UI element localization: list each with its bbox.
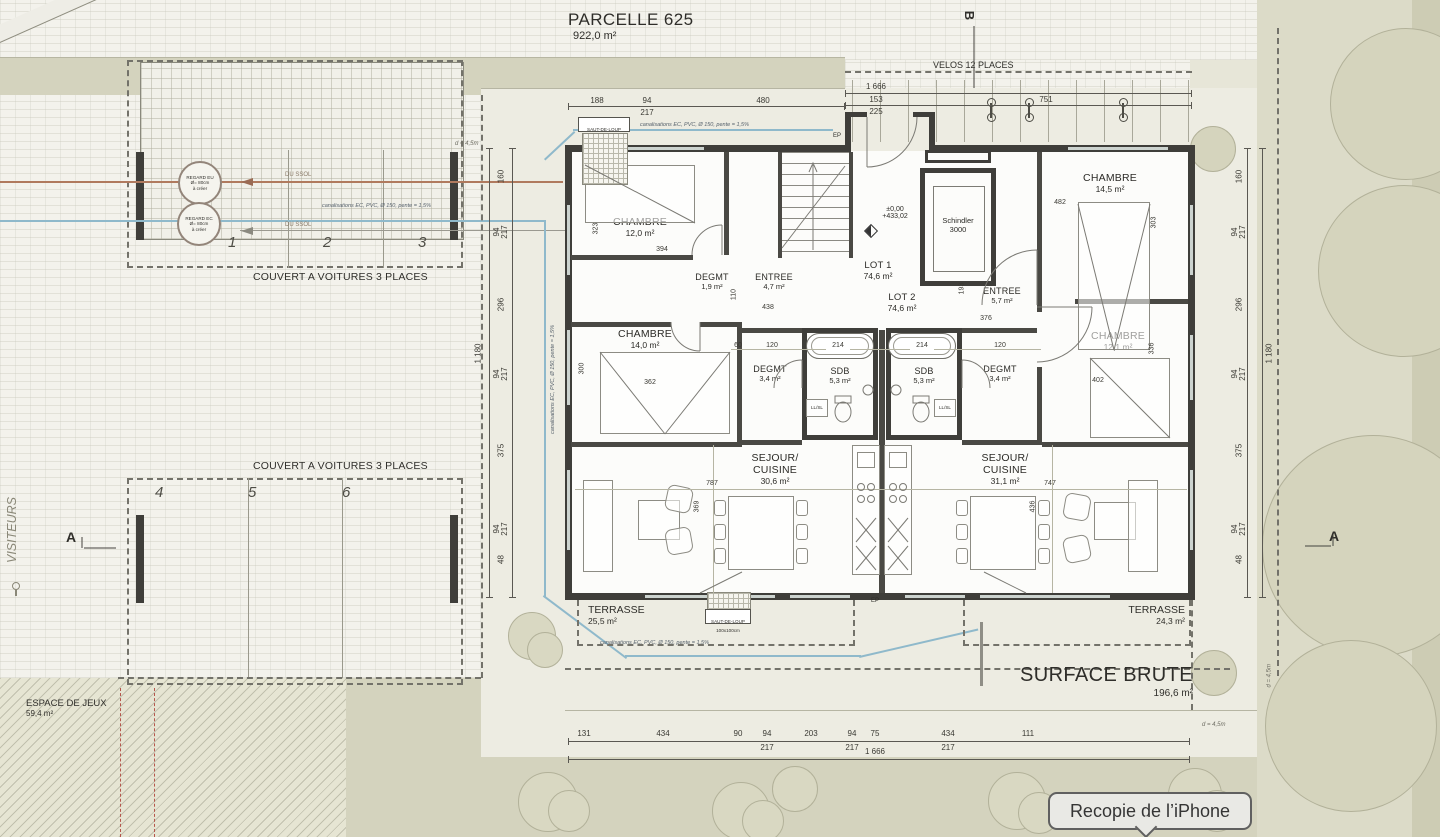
room-label-lot2: LOT 2 74,6 m²	[880, 292, 924, 313]
canalisation-label: canalisations EC, PVC, Ø 150, pente = 1,…	[322, 203, 431, 209]
saut-de-loup-size: 100x100cm	[706, 628, 750, 633]
pipe-ec-line	[0, 220, 546, 222]
room-label-sdb2: SDB 5,3 m²	[906, 366, 942, 385]
dim-label: 75	[866, 729, 884, 738]
dim-label-pair: 94 217	[1231, 518, 1247, 540]
lot-area: 74,6 m²	[880, 303, 924, 313]
washer-dryer: LL/SL	[806, 399, 828, 417]
dim-label: 193	[958, 277, 967, 301]
room-area: 25,5 m²	[588, 616, 645, 626]
ep-label: EP	[871, 598, 879, 605]
room-label-degmt2: DEGMT 3,4 m²	[748, 364, 792, 383]
kitchen-sink	[857, 452, 875, 468]
ep-label: EP	[833, 133, 841, 140]
room-label-sejour2: SEJOUR/ CUISINE 31,1 m²	[973, 452, 1037, 486]
dining-table	[728, 496, 794, 570]
dim-label: 203	[797, 729, 825, 738]
dim-label: 120	[990, 341, 1010, 350]
saut-de-loup-label: SAUT-DE-LOUP	[587, 127, 621, 132]
room-area: 14,0 m²	[613, 340, 677, 350]
regard-eu-note: à créer	[180, 186, 220, 191]
elevator-vent	[925, 150, 991, 163]
carport-bottom-label: COUVERT A VOITURES 3 PLACES	[253, 460, 503, 472]
dim-label: 787	[700, 479, 724, 488]
window	[567, 470, 570, 550]
bike-slot-divider	[852, 80, 853, 142]
room-label-entree1: ENTREE 4,7 m²	[752, 272, 796, 291]
parcel-area-label: 922,0 m²	[573, 30, 616, 42]
window	[1190, 335, 1193, 400]
vestibule-lintel	[913, 112, 935, 117]
sofa	[1128, 480, 1158, 572]
parking-number: 6	[342, 484, 350, 501]
dim-label: 1 666	[855, 747, 895, 756]
chair	[796, 524, 808, 540]
dim-label: 48	[1235, 547, 1244, 573]
armchair	[664, 526, 694, 556]
bike-slot-divider	[1104, 80, 1105, 142]
level-value: ±0,00	[872, 206, 918, 213]
dim-label: 120	[762, 341, 782, 350]
sanitary-wall	[742, 328, 802, 333]
chambre4-wall	[1037, 367, 1042, 445]
dim-label: 48	[497, 547, 506, 573]
dim-label: 217	[637, 108, 657, 117]
dim-line-interior	[713, 445, 714, 593]
chambre4-wall	[1037, 302, 1042, 312]
window	[618, 147, 704, 150]
dim-label: 402	[1086, 376, 1110, 385]
dim-value: 217	[1239, 221, 1247, 243]
paving-top-strip	[0, 0, 1260, 60]
saut-de-loup-grate	[582, 133, 628, 185]
dim-label: 434	[930, 729, 966, 738]
vestibule-wall	[929, 112, 935, 152]
parking-divider	[288, 150, 289, 268]
dim-line	[568, 106, 845, 107]
room-area: 14,5 m²	[1078, 184, 1142, 194]
room-name: CHAMBRE	[613, 328, 677, 340]
play-area-area: 59,4 m²	[26, 709, 53, 718]
room-area: 24,3 m²	[1090, 616, 1185, 626]
dim-line	[1262, 148, 1263, 598]
dim-label: 214	[826, 341, 850, 350]
dim-label: 217	[752, 743, 782, 752]
room-label-chambre3: CHAMBRE 14,5 m²	[1078, 172, 1142, 194]
dim-label: 111	[1014, 729, 1042, 738]
room-label-degmt1: DEGMT 1,9 m²	[690, 272, 734, 291]
canalisation-label-vertical: canalisations EC, PVC, Ø 150, pente = 1,…	[550, 324, 556, 434]
room-label-chambre2: CHAMBRE 14,0 m²	[613, 328, 677, 350]
saut-de-loup-header: SAUT-DE-LOUP 100x100cm	[578, 117, 630, 132]
bike-slot-divider	[1132, 80, 1133, 142]
dim-label: 214	[910, 341, 934, 350]
chair	[956, 500, 968, 516]
room-label-terrasse1: TERRASSE 25,5 m²	[588, 604, 645, 626]
dim-label: 323	[592, 217, 601, 241]
chair	[1038, 548, 1050, 564]
room-name: TERRASSE	[588, 604, 645, 616]
parking-number: 3	[418, 234, 426, 251]
bike-slot-divider	[1048, 80, 1049, 142]
washer-dryer-label: LL/SL	[939, 405, 951, 410]
dim-label: 94	[757, 729, 777, 738]
velos-label: VELOS 12 PLACES	[933, 62, 1014, 69]
room-area: 3,4 m²	[748, 374, 792, 383]
dim-label: 482	[1048, 198, 1072, 207]
vestibule-wall	[845, 112, 851, 152]
glass-door	[905, 595, 965, 598]
dim-label: 375	[497, 438, 506, 464]
room-label-terrasse2: TERRASSE 24,3 m²	[1090, 604, 1185, 626]
chambre4-wall	[1042, 442, 1188, 447]
carport-post	[450, 152, 458, 240]
window	[1190, 205, 1193, 275]
bed	[600, 352, 730, 434]
glass-door	[980, 595, 1110, 598]
dim-line	[568, 759, 1190, 760]
chair	[796, 500, 808, 516]
carport-post	[136, 515, 144, 603]
room-name: ENTREE	[752, 272, 796, 282]
parking-divider	[383, 150, 384, 268]
elevator-label: Schindler 3000	[928, 216, 988, 234]
dim-label: 362	[638, 378, 662, 387]
dim-value: 217	[1239, 518, 1247, 540]
dim-label: 394	[650, 245, 674, 254]
staircase	[782, 152, 849, 252]
washer-dryer: LL/SL	[934, 399, 956, 417]
mirroring-tooltip-label: Recopie de l’iPhone	[1070, 801, 1230, 822]
room-area: 5,3 m²	[822, 376, 858, 385]
room-area: 31,1 m²	[973, 476, 1037, 486]
bike-slot-divider	[1020, 80, 1021, 142]
dim-label: 1 180	[1265, 338, 1274, 370]
lot-name: LOT 1	[856, 260, 900, 271]
red-dashed-line	[120, 688, 121, 837]
regard-ec-note: à créer	[179, 227, 219, 232]
dim-label: 303	[1150, 211, 1159, 235]
parcel-bottom-line	[565, 710, 1257, 711]
carport-top-label: COUVERT A VOITURES 3 PLACES	[253, 271, 503, 283]
chair	[714, 548, 726, 564]
wardrobe	[1090, 358, 1170, 438]
dim-label: 369	[693, 496, 702, 518]
saut-de-loup-header: SAUT-DE-LOUP 100x100cm	[705, 609, 751, 624]
dim-label: 300	[578, 357, 587, 381]
tree-small	[1190, 126, 1236, 172]
carport-post	[450, 515, 458, 603]
kitchen-sink	[889, 452, 907, 468]
dim-label: 434	[645, 729, 681, 738]
surface-brute-area: 196,6 m²	[1113, 688, 1193, 699]
parking-number: 2	[323, 234, 331, 251]
dim-line	[845, 105, 1192, 106]
chambre1-wall	[571, 255, 693, 260]
room-area: 30,6 m²	[743, 476, 807, 486]
dim-value: 217	[1239, 363, 1247, 385]
pipe-eu-line	[0, 181, 563, 183]
canalisation-label: canalisations EC, PVC, Ø 150, pente = 1,…	[640, 122, 749, 128]
dim-label: 188	[583, 96, 611, 105]
pipe-ec-bottom	[625, 655, 861, 657]
tree	[1265, 640, 1437, 812]
dim-label: 217	[933, 743, 963, 752]
dim-label: 131	[570, 729, 598, 738]
chambre3-wall	[1037, 152, 1042, 304]
dim-label-pair: 94 217	[493, 221, 509, 243]
bicycle-icon	[1118, 98, 1128, 122]
dim-label: 225	[864, 107, 888, 116]
dining-table	[970, 496, 1036, 570]
altitude-value: +433,02	[872, 213, 918, 220]
window	[1068, 147, 1168, 150]
room-name: DEGMT	[748, 364, 792, 374]
bike-slot-divider	[1188, 80, 1189, 142]
tree-diameter-label: d = 4,5m	[455, 141, 479, 148]
room-area: 5,3 m²	[906, 376, 942, 385]
room-name2: CUISINE	[743, 464, 807, 476]
bush	[548, 790, 590, 832]
room-label-degmt3: DEGMT 3,4 m²	[978, 364, 1022, 383]
chair	[796, 548, 808, 564]
dim-label: 436	[1029, 496, 1038, 518]
dim-label-pair: 94 217	[493, 518, 509, 540]
bush	[742, 800, 784, 837]
sanitary-wall	[962, 328, 1037, 333]
room-name: SDB	[906, 366, 942, 376]
dim-line	[568, 741, 1190, 742]
armchair	[1062, 492, 1092, 522]
window	[567, 205, 570, 275]
chair	[1038, 500, 1050, 516]
parking-number: 1	[228, 234, 236, 251]
du-ssol-label: DU SSOL	[285, 172, 311, 179]
dim-label: 296	[497, 292, 506, 318]
sofa	[583, 480, 613, 572]
dim-label: 336	[1148, 337, 1157, 361]
chair	[1038, 524, 1050, 540]
dim-line	[845, 93, 1192, 94]
dim-label: 110	[730, 284, 739, 306]
room-area: 3,4 m²	[978, 374, 1022, 383]
tree-diameter-label: d = 4,5m	[1202, 722, 1226, 729]
hall-wall	[700, 322, 737, 327]
play-area-label: ESPACE DE JEUX	[26, 698, 107, 709]
elevator-brand: Schindler	[928, 216, 988, 225]
dim-label: 1 666	[856, 82, 896, 91]
dim-label: 438	[756, 303, 780, 312]
room-name: TERRASSE	[1090, 604, 1185, 616]
wardrobe	[1078, 202, 1150, 350]
regard-ec-manhole: REGARD EC Ø= 80cm à créer	[177, 202, 221, 246]
room-name2: CUISINE	[973, 464, 1037, 476]
dim-value: 217	[501, 518, 509, 540]
dim-label: 1 180	[474, 338, 483, 370]
page-title: PARCELLE 625	[568, 10, 693, 30]
room-area: 1,9 m²	[690, 282, 734, 291]
dim-label-pair: 94 217	[1231, 221, 1247, 243]
room-name: SEJOUR/	[973, 452, 1037, 464]
room-name: ENTREE	[980, 286, 1024, 296]
bike-slot-divider	[1160, 80, 1161, 142]
degmt2-wall	[737, 440, 802, 445]
bush	[772, 766, 818, 812]
chair	[956, 524, 968, 540]
window	[567, 330, 570, 405]
dim-label: 747	[1038, 479, 1062, 488]
parking-number: 5	[248, 484, 256, 501]
room-name: DEGMT	[690, 272, 734, 282]
dim-value: 217	[501, 221, 509, 243]
dim-line-interior	[575, 489, 1187, 490]
dim-label: 480	[745, 96, 781, 105]
dim-value: 217	[501, 363, 509, 385]
glass-door	[790, 595, 850, 598]
room-area: 5,7 m²	[980, 296, 1024, 305]
room-area: 12,0 m²	[608, 228, 672, 238]
window	[1190, 470, 1193, 550]
carport-bottom-boundary	[127, 478, 463, 685]
tree-small	[1191, 650, 1237, 696]
carport-post	[136, 152, 144, 240]
saut-de-loup-grate	[707, 592, 751, 610]
tree-diameter-label: d = 4,5m	[1267, 652, 1274, 688]
room-name: SDB	[822, 366, 858, 376]
bike-slot-divider	[908, 80, 909, 142]
chair	[956, 548, 968, 564]
velos-dashed-boundary	[845, 71, 1192, 73]
chambre1-wall	[724, 152, 729, 255]
floor-plan-screenshot: PARCELLE 625 922,0 m² 1 2 3 COUVERT A VO…	[0, 0, 1440, 837]
dim-label: 60	[730, 341, 746, 350]
red-dashed-line	[154, 688, 155, 837]
dim-line	[1247, 148, 1248, 598]
section-marker-a-left: A	[66, 529, 76, 545]
parcel-dashed-south-west	[118, 677, 481, 679]
dim-line	[489, 148, 490, 598]
hall-wall	[571, 322, 671, 327]
room-name: CHAMBRE	[1078, 172, 1142, 184]
dim-label: 153	[864, 95, 888, 104]
dim-label: 376	[974, 314, 998, 323]
bike-slot-divider	[964, 80, 965, 142]
dim-label: 375	[1235, 438, 1244, 464]
dim-label: 296	[1235, 292, 1244, 318]
dim-line	[512, 148, 513, 598]
room-label-entree2: ENTREE 5,7 m²	[980, 286, 1024, 305]
parcel-edge-line	[481, 88, 845, 89]
bush	[527, 632, 563, 668]
carport-top-boundary	[127, 60, 463, 268]
bicycle-icon	[986, 98, 996, 122]
parcel-dashed-east	[1277, 28, 1279, 676]
pipe-ec-vertical	[544, 220, 546, 597]
bike-slot-divider	[1076, 80, 1077, 142]
dim-label: 90	[728, 729, 748, 738]
saut-de-loup-label: SAUT-DE-LOUP	[711, 619, 745, 624]
room-label-lot1: LOT 1 74,6 m²	[856, 260, 900, 281]
bike-slot-divider	[936, 80, 937, 142]
dim-label: 160	[1235, 164, 1244, 190]
dim-line-interior	[1052, 445, 1053, 593]
surface-brute-label: SURFACE BRUTE	[973, 664, 1193, 687]
room-name: DEGMT	[978, 364, 1022, 374]
parcel-dashed-west	[481, 95, 483, 678]
dim-label: 160	[497, 164, 506, 190]
dim-label: 94	[637, 96, 657, 105]
room-name: SEJOUR/	[743, 452, 807, 464]
visiteurs-label: VISITEURS	[5, 485, 19, 575]
dim-label-pair: 94 217	[493, 363, 509, 385]
degmt3-wall	[962, 440, 1042, 445]
visitor-symbol-stem	[15, 589, 17, 596]
room-label-sejour1: SEJOUR/ CUISINE 30,6 m²	[743, 452, 807, 486]
dim-label: 751	[1032, 95, 1060, 104]
elevator-model: 3000	[928, 225, 988, 234]
room-label-sdb1: SDB 5,3 m²	[822, 366, 858, 385]
lot-name: LOT 2	[880, 292, 924, 303]
dim-label-pair: 94 217	[1231, 363, 1247, 385]
washer-dryer-label: LL/SL	[811, 405, 823, 410]
dim-label: 94	[842, 729, 862, 738]
section-marker-b: B	[962, 11, 977, 20]
chair	[714, 500, 726, 516]
chair	[714, 524, 726, 540]
stair-wall	[849, 152, 853, 258]
level-label: ±0,00 +433,02	[872, 206, 918, 220]
parking-number: 4	[155, 484, 163, 501]
parking-divider	[248, 478, 249, 678]
parking-divider	[342, 478, 343, 678]
chambre2-wall	[571, 442, 742, 447]
section-marker-a-right: A	[1329, 528, 1339, 544]
room-area: 4,7 m²	[752, 282, 796, 291]
lot-area: 74,6 m²	[856, 271, 900, 281]
regard-eu-manhole: REGARD EU Ø= 80cm à créer	[178, 161, 222, 205]
du-ssol-label: DU SSOL	[285, 222, 311, 229]
